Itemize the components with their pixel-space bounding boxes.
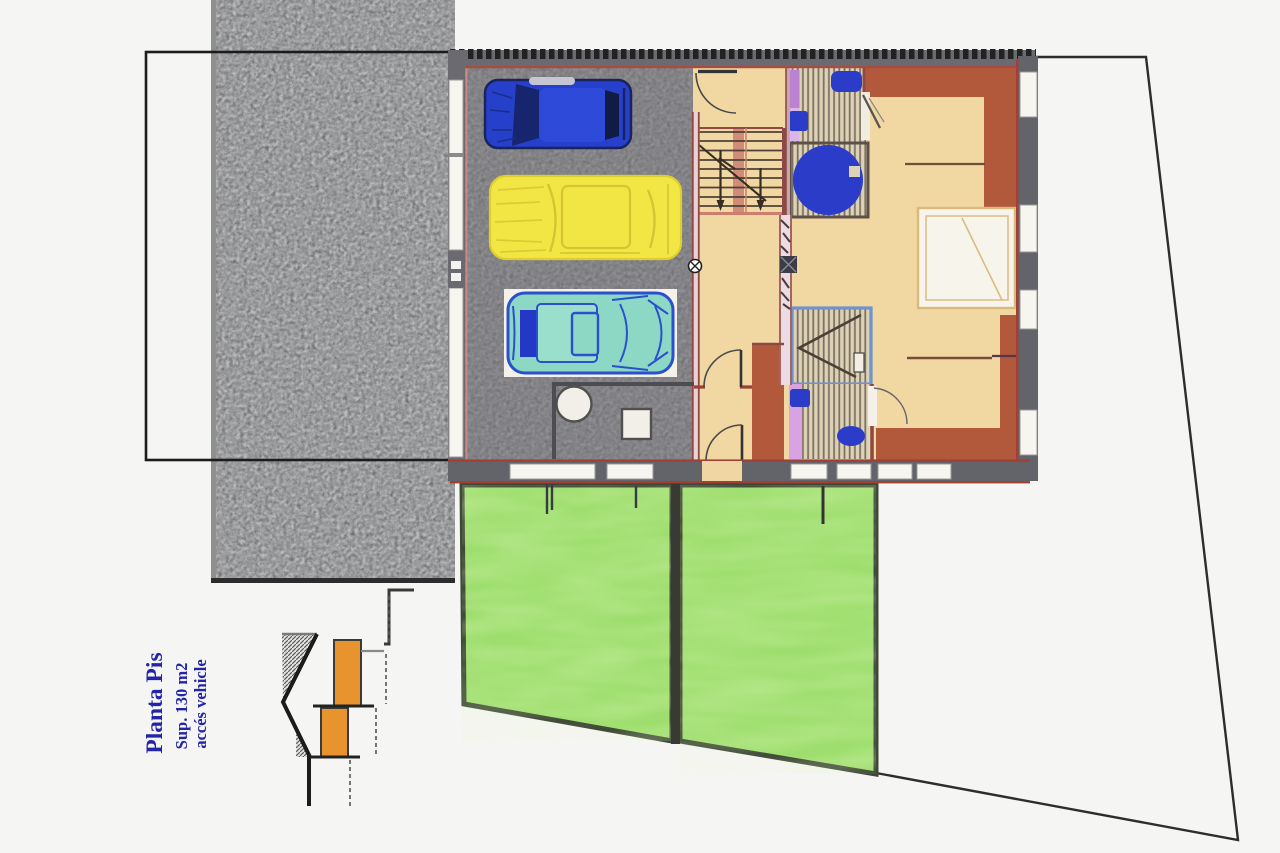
svg-text:accés vehicle: accés vehicle: [191, 659, 210, 748]
svg-text:Planta Pis: Planta Pis: [142, 652, 168, 753]
svg-text:Sup. 130 m2: Sup. 130 m2: [172, 663, 191, 750]
